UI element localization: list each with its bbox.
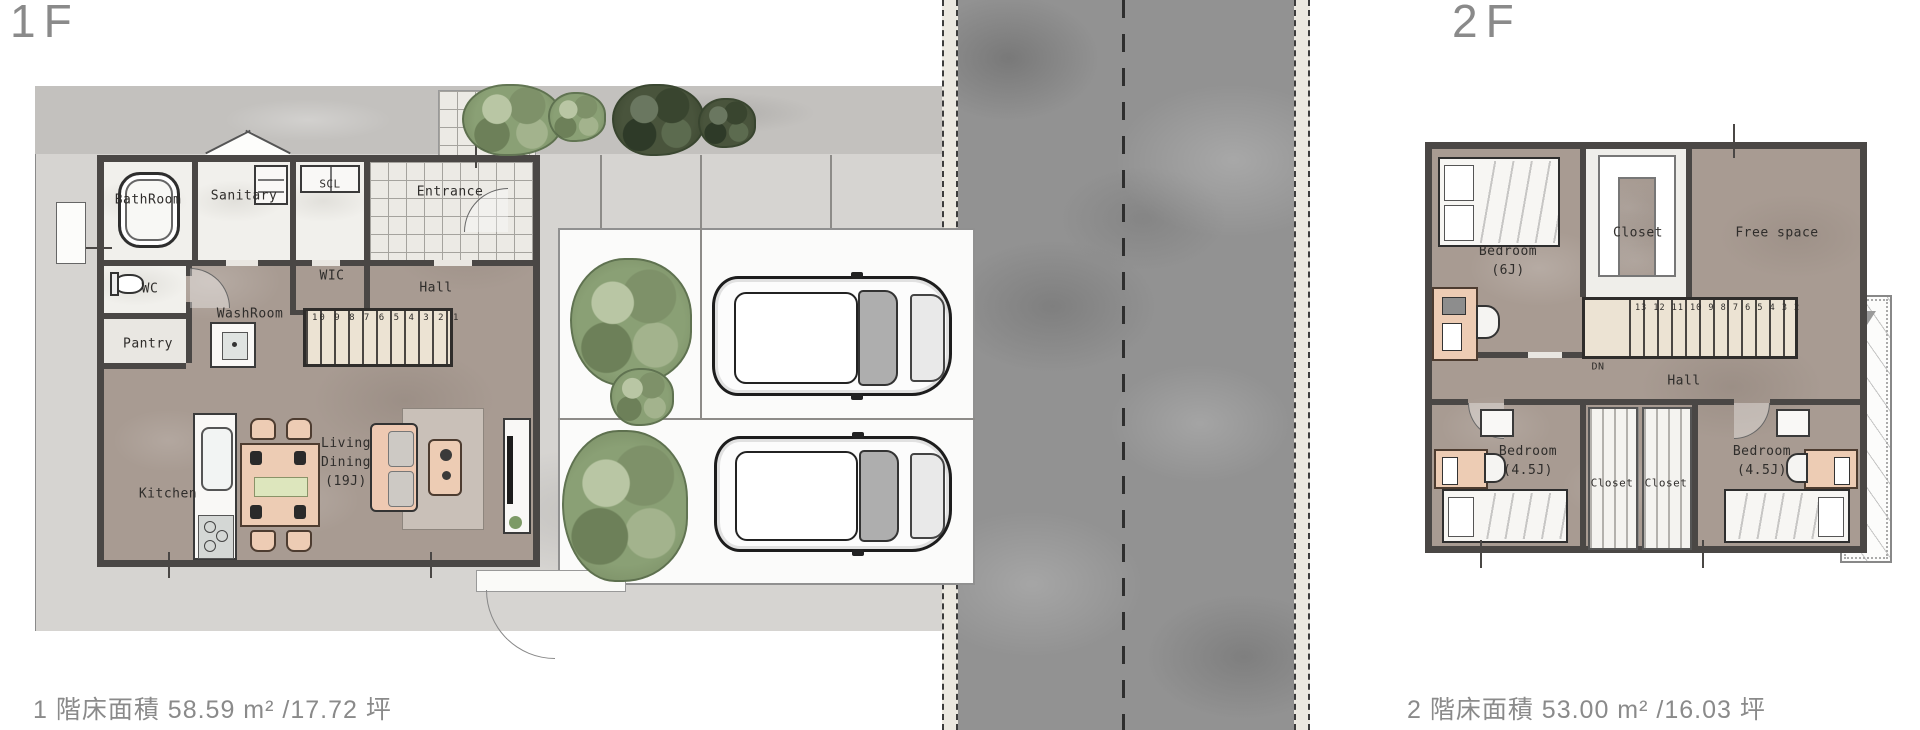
house-2f: 13 12 11 10 9 8 7 6 5 4 3 2 xyxy=(1425,142,1867,553)
label-bedroom-right: Bedroom (4.5J) xyxy=(1733,442,1791,480)
label-line: Dining xyxy=(321,455,371,470)
wall xyxy=(104,363,186,369)
coffee-table xyxy=(428,439,462,496)
kitchen-counter xyxy=(193,413,237,560)
label-line: (6J) xyxy=(1491,263,1524,278)
road-centerline xyxy=(1122,0,1125,730)
label-kitchen: Kitchen xyxy=(139,485,197,504)
bedroom-door-swing xyxy=(1734,403,1770,439)
label-line: Bedroom xyxy=(1499,444,1557,459)
desk xyxy=(1432,287,1478,361)
wall xyxy=(1580,149,1586,297)
bed-double xyxy=(1438,157,1560,247)
label-line: (19J) xyxy=(325,474,367,489)
washbasin-unit xyxy=(210,322,256,368)
door-gap xyxy=(434,260,472,266)
parking-stall-divider xyxy=(700,228,702,420)
wall xyxy=(186,302,192,363)
stair-step-numbers: 13 12 11 10 9 8 7 6 5 4 3 2 xyxy=(1635,303,1800,313)
label-hall-2f: Hall xyxy=(1667,372,1700,391)
dining-chair xyxy=(250,418,276,440)
label-pantry: Pantry xyxy=(123,335,173,354)
dimension-tick xyxy=(1702,540,1704,568)
room-entrance xyxy=(370,162,533,260)
floor-2-area-caption: 2 階床面積 53.00 m² /16.03 坪 xyxy=(1407,690,1766,726)
staircase-2f: 13 12 11 10 9 8 7 6 5 4 3 2 xyxy=(1582,297,1798,359)
wall xyxy=(104,313,186,319)
dining-chair xyxy=(250,530,276,552)
label-line: Bedroom xyxy=(1733,444,1791,459)
dining-chair xyxy=(286,418,312,440)
label-entrance: Entrance xyxy=(417,183,484,202)
toilet-tank xyxy=(110,272,119,296)
stove xyxy=(198,515,234,559)
bed-single xyxy=(1724,489,1850,543)
sidewalk-right xyxy=(1294,0,1310,730)
house-1f: 10 9 8 7 6 5 4 3 2 1 xyxy=(97,155,540,567)
wall xyxy=(290,162,296,260)
tree xyxy=(570,258,692,386)
wall xyxy=(364,266,370,310)
label-bedroom-left: Bedroom (4.5J) xyxy=(1499,442,1557,480)
wall xyxy=(1686,149,1692,297)
stair-step-numbers: 10 9 8 7 6 5 4 3 2 1 xyxy=(312,313,460,323)
tree xyxy=(612,84,704,156)
desk-chair xyxy=(1476,305,1500,339)
label-living-dining: Living Dining (19J) xyxy=(321,434,371,491)
utility-meter-box xyxy=(56,202,86,264)
tv-board xyxy=(503,418,531,534)
tree xyxy=(698,98,756,148)
car-top xyxy=(712,276,952,396)
label-wic: WIC xyxy=(320,267,345,286)
tree xyxy=(548,92,606,142)
label-dn: DN xyxy=(1591,358,1604,377)
parking-stall-mark xyxy=(700,155,702,228)
plant-pot xyxy=(509,516,522,529)
dining-chair xyxy=(286,530,312,552)
label-wc: WC xyxy=(142,280,159,299)
wall xyxy=(192,162,198,260)
label-bedroom-6j: Bedroom (6J) xyxy=(1479,242,1537,280)
label-sanitary: Sanitary xyxy=(211,187,278,206)
label-line: Living xyxy=(321,436,371,451)
dimension-tick xyxy=(430,552,432,578)
wall xyxy=(1692,405,1698,546)
table-runner xyxy=(254,477,308,497)
label-free-space: Free space xyxy=(1735,224,1818,243)
label-closet-right: Closet xyxy=(1645,474,1688,493)
sofa xyxy=(370,423,418,512)
car-bottom xyxy=(714,436,952,552)
parking-stall-mark xyxy=(600,155,602,228)
floor-plan-sheet: 1F 2F 1 階床面積 58.59 m² /17.72 坪 2 階床面積 53… xyxy=(0,0,1920,730)
road xyxy=(958,0,1294,730)
dimension-tick xyxy=(1480,540,1482,568)
tree xyxy=(610,368,674,426)
bed-single xyxy=(1442,489,1568,543)
label-washroom: WashRoom xyxy=(217,305,284,324)
label-scl: SCL xyxy=(319,175,340,194)
door-gap xyxy=(312,260,340,266)
dining-table xyxy=(240,443,320,527)
dimension-tick xyxy=(168,552,170,578)
parking-stall-mark xyxy=(830,155,832,228)
nightstand xyxy=(1776,409,1810,437)
garden-door-swing xyxy=(486,590,555,659)
tree xyxy=(462,84,562,156)
door-gap xyxy=(1528,352,1562,358)
label-line: (4.5J) xyxy=(1737,463,1787,478)
label-line: Bedroom xyxy=(1479,244,1537,259)
floor-1-title: 1F xyxy=(10,0,80,48)
label-hall: Hall xyxy=(419,279,452,298)
nightstand xyxy=(1480,409,1514,437)
dimension-tick xyxy=(1733,124,1735,158)
staircase-1f: 10 9 8 7 6 5 4 3 2 1 xyxy=(303,308,453,367)
wall xyxy=(290,266,296,310)
washroom-door-swing xyxy=(190,268,230,308)
bathtub xyxy=(118,172,180,248)
label-closet-left: Closet xyxy=(1591,474,1634,493)
wall xyxy=(1580,405,1586,546)
door-gap xyxy=(226,260,258,266)
tree xyxy=(562,430,688,582)
label-bathroom: BathRoom xyxy=(115,191,182,210)
kitchen-sink xyxy=(201,427,233,491)
wall xyxy=(1770,399,1860,405)
floor-1-area-caption: 1 階床面積 58.59 m² /17.72 坪 xyxy=(33,690,392,726)
dimension-tick xyxy=(86,247,112,249)
label-line: (4.5J) xyxy=(1503,463,1553,478)
desk xyxy=(1804,449,1858,489)
tv xyxy=(507,436,513,504)
wall xyxy=(1504,399,1734,405)
wall xyxy=(1432,399,1468,405)
wall xyxy=(364,162,370,260)
floor-2-title: 2F xyxy=(1452,0,1522,48)
label-closet-top: Closet xyxy=(1613,224,1663,243)
desk xyxy=(1434,449,1488,489)
